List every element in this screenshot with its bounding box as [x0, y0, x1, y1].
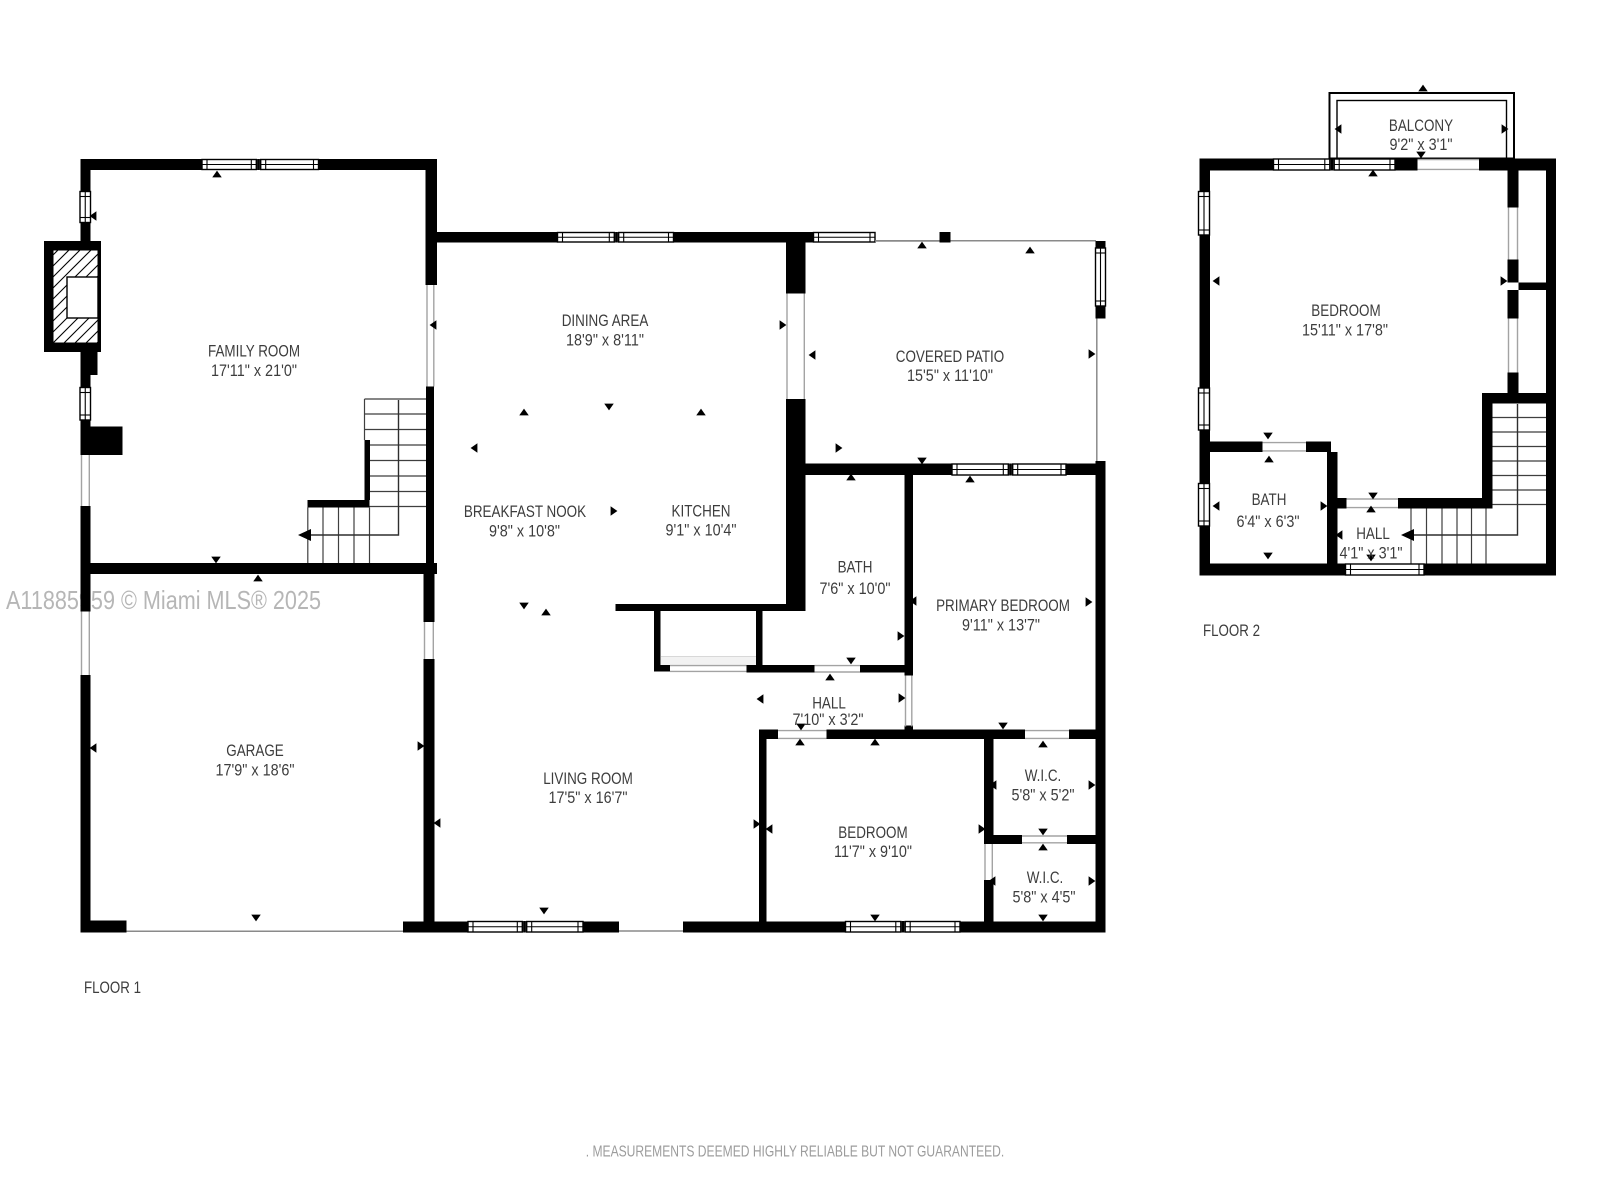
svg-text:7'6" x 10'0": 7'6" x 10'0"	[820, 580, 891, 598]
svg-text:FAMILY ROOM: FAMILY ROOM	[208, 343, 300, 361]
svg-text:18'9" x 8'11": 18'9" x 8'11"	[566, 332, 644, 350]
svg-text:5'8" x 5'2": 5'8" x 5'2"	[1012, 787, 1075, 805]
svg-text:GARAGE: GARAGE	[226, 742, 284, 760]
svg-text:BEDROOM: BEDROOM	[838, 824, 907, 842]
svg-text:FLOOR 2: FLOOR 2	[1203, 622, 1260, 640]
svg-text:9'1" x 10'4": 9'1" x 10'4"	[666, 522, 737, 540]
svg-text:HALL: HALL	[812, 695, 846, 713]
svg-text:7'10" x 3'2": 7'10" x 3'2"	[793, 711, 864, 729]
svg-text:17'5" x 16'7": 17'5" x 16'7"	[549, 789, 628, 807]
svg-text:4'1" x 3'1": 4'1" x 3'1"	[1340, 545, 1403, 563]
svg-text:6'4" x 6'3": 6'4" x 6'3"	[1237, 513, 1300, 531]
svg-text:17'9" x 18'6": 17'9" x 18'6"	[216, 762, 295, 780]
svg-text:. MEASUREMENTS DEEMED HIGHLY R: . MEASUREMENTS DEEMED HIGHLY RELIABLE BU…	[586, 1144, 1005, 1161]
svg-text:FLOOR 1: FLOOR 1	[84, 979, 141, 997]
svg-text:DINING AREA: DINING AREA	[562, 312, 649, 330]
svg-text:KITCHEN: KITCHEN	[672, 503, 731, 521]
svg-text:W.I.C.: W.I.C.	[1027, 869, 1064, 887]
svg-text:W.I.C.: W.I.C.	[1025, 767, 1062, 785]
svg-text:11'7" x 9'10": 11'7" x 9'10"	[834, 843, 912, 861]
svg-text:BREAKFAST NOOK: BREAKFAST NOOK	[464, 503, 586, 521]
svg-text:9'2" x 3'1": 9'2" x 3'1"	[1390, 136, 1453, 154]
svg-text:PRIMARY BEDROOM: PRIMARY BEDROOM	[936, 597, 1070, 615]
svg-text:17'11" x 21'0": 17'11" x 21'0"	[211, 362, 297, 380]
svg-text:HALL: HALL	[1356, 525, 1390, 543]
svg-text:BALCONY: BALCONY	[1389, 117, 1453, 135]
svg-text:9'8" x 10'8": 9'8" x 10'8"	[489, 523, 560, 541]
svg-text:BATH: BATH	[838, 559, 873, 577]
svg-text:5'8" x 4'5": 5'8" x 4'5"	[1013, 889, 1076, 907]
svg-text:15'5" x 11'10": 15'5" x 11'10"	[907, 367, 993, 385]
svg-text:9'11" x 13'7": 9'11" x 13'7"	[962, 617, 1040, 635]
svg-text:COVERED PATIO: COVERED PATIO	[896, 348, 1005, 366]
svg-text:BEDROOM: BEDROOM	[1311, 302, 1380, 320]
svg-text:15'11" x 17'8": 15'11" x 17'8"	[1302, 322, 1388, 340]
svg-text:BATH: BATH	[1252, 491, 1287, 509]
svg-text:LIVING ROOM: LIVING ROOM	[543, 770, 633, 788]
svg-text:A11885959 © Miami MLS® 2025: A11885959 © Miami MLS® 2025	[6, 585, 321, 615]
